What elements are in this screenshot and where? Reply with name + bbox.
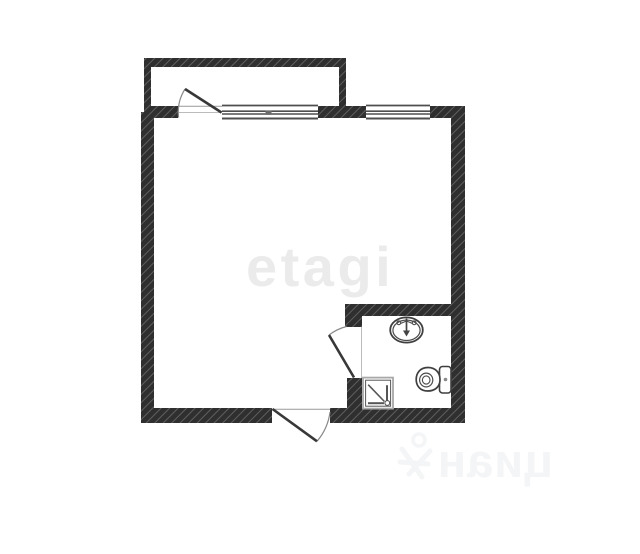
svg-text:etagi: etagi [246, 235, 394, 298]
svg-text:циан: циан [437, 434, 553, 487]
